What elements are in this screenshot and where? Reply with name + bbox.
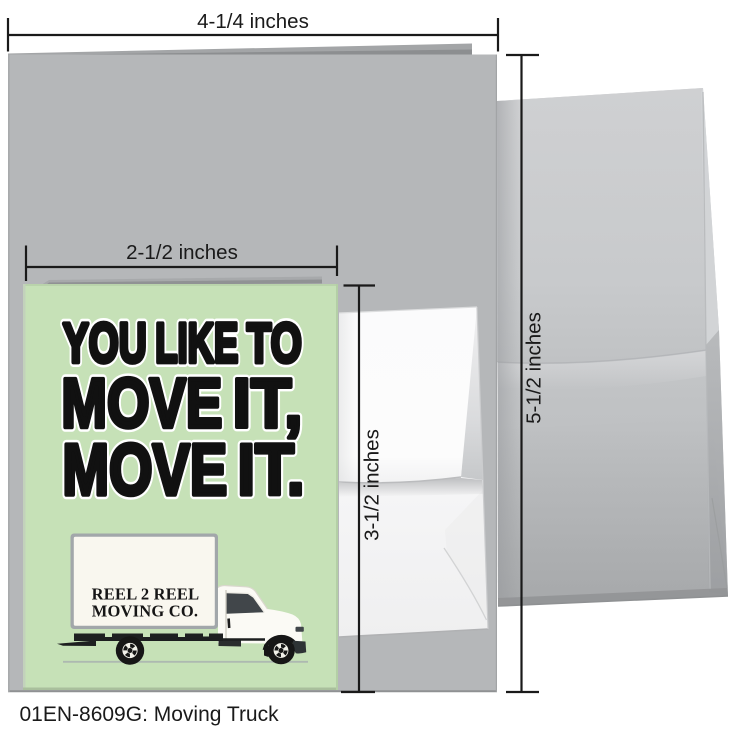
svg-text:MOVE: MOVE [62, 430, 227, 510]
svg-text:01EN-8609G: Moving Truck: 01EN-8609G: Moving Truck [20, 703, 280, 726]
svg-text:MOVING CO.: MOVING CO. [92, 602, 199, 621]
svg-text:3-1/2 inches: 3-1/2 inches [361, 429, 384, 541]
svg-text:IT.: IT. [237, 430, 304, 510]
svg-text:4-1/4 inches: 4-1/4 inches [197, 10, 309, 33]
svg-text:5-1/2 inches: 5-1/2 inches [523, 312, 546, 424]
svg-text:2-1/2 inches: 2-1/2 inches [126, 241, 238, 264]
